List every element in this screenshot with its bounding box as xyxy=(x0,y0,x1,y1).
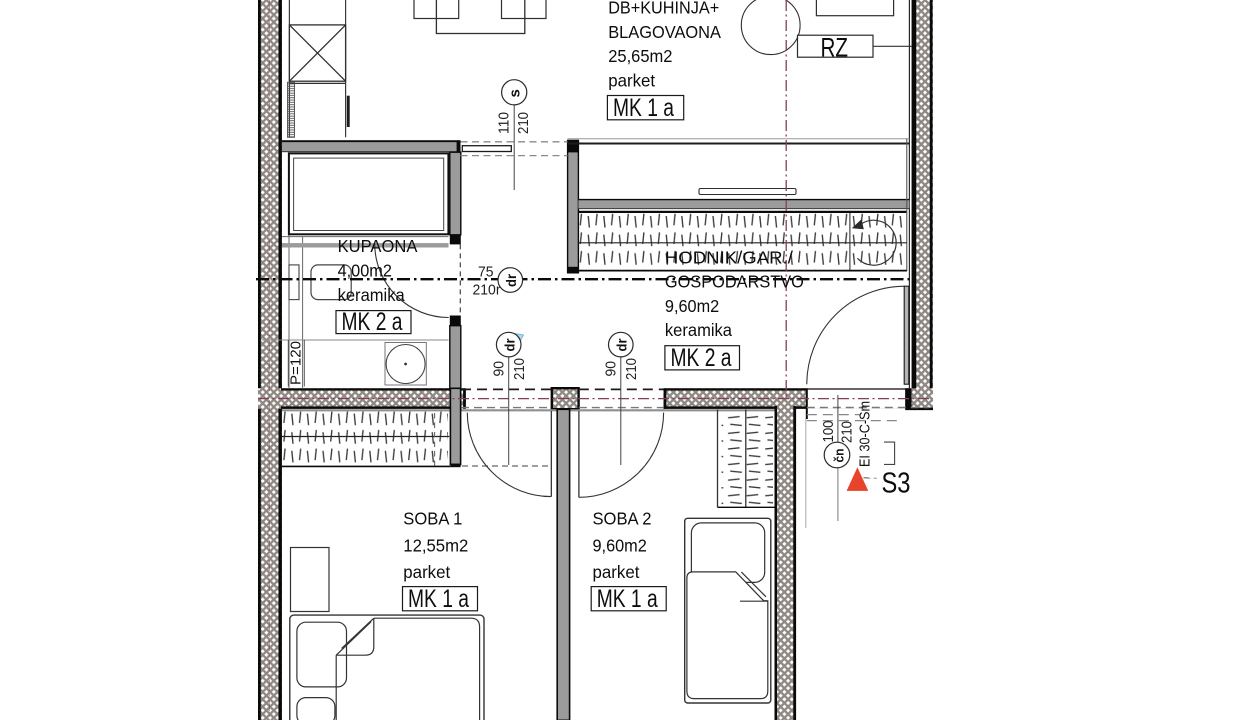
svg-text:RZ: RZ xyxy=(821,32,849,62)
svg-text:HODNIK/GAR./: HODNIK/GAR./ xyxy=(665,247,793,267)
svg-text:90: 90 xyxy=(491,361,508,377)
svg-text:KUPAONA: KUPAONA xyxy=(338,236,418,256)
svg-text:25,65m2: 25,65m2 xyxy=(608,46,672,66)
svg-text:9,60m2: 9,60m2 xyxy=(593,536,647,556)
svg-text:dr: dr xyxy=(502,338,517,352)
svg-text:MK 1 a: MK 1 a xyxy=(408,585,469,613)
svg-text:MK 2 a: MK 2 a xyxy=(671,344,732,372)
svg-text:parket: parket xyxy=(593,562,640,582)
svg-text:12,55m2: 12,55m2 xyxy=(403,536,468,556)
svg-text:210: 210 xyxy=(623,358,640,380)
svg-text:MK 2 a: MK 2 a xyxy=(342,308,403,336)
svg-text:keramika: keramika xyxy=(665,320,732,340)
svg-text:SOBA 2: SOBA 2 xyxy=(593,509,652,529)
svg-text:dr: dr xyxy=(615,338,630,352)
svg-text:DB+KUHINJA+: DB+KUHINJA+ xyxy=(608,0,719,18)
svg-text:parket: parket xyxy=(403,562,450,582)
svg-text:100: 100 xyxy=(820,421,837,443)
svg-text:S3: S3 xyxy=(882,468,911,500)
svg-text:dr: dr xyxy=(504,273,519,287)
svg-text:čn: čn xyxy=(832,448,847,462)
svg-text:110: 110 xyxy=(496,112,513,134)
svg-text:GOSPODARSTVO: GOSPODARSTVO xyxy=(665,272,804,292)
svg-text:s: s xyxy=(507,89,524,97)
svg-text:parket: parket xyxy=(608,70,655,90)
svg-text:90: 90 xyxy=(603,361,620,377)
svg-text:210: 210 xyxy=(515,112,532,134)
svg-text:9,60m2: 9,60m2 xyxy=(665,296,719,316)
svg-text:SOBA 1: SOBA 1 xyxy=(403,509,462,529)
svg-text:75: 75 xyxy=(478,264,494,281)
svg-text:keramika: keramika xyxy=(338,285,405,305)
svg-text:BLAGOVAONA: BLAGOVAONA xyxy=(608,22,721,42)
svg-text:210r: 210r xyxy=(473,282,501,299)
svg-text:MK 1 a: MK 1 a xyxy=(597,585,658,613)
svg-text:P=120: P=120 xyxy=(289,341,305,385)
svg-text:4,00m2: 4,00m2 xyxy=(338,261,392,281)
svg-text:MK 1 a: MK 1 a xyxy=(613,94,674,122)
svg-text:210: 210 xyxy=(511,358,528,380)
svg-text:210: 210 xyxy=(839,421,856,443)
svg-text:EI 30-C-Sm: EI 30-C-Sm xyxy=(858,401,874,467)
